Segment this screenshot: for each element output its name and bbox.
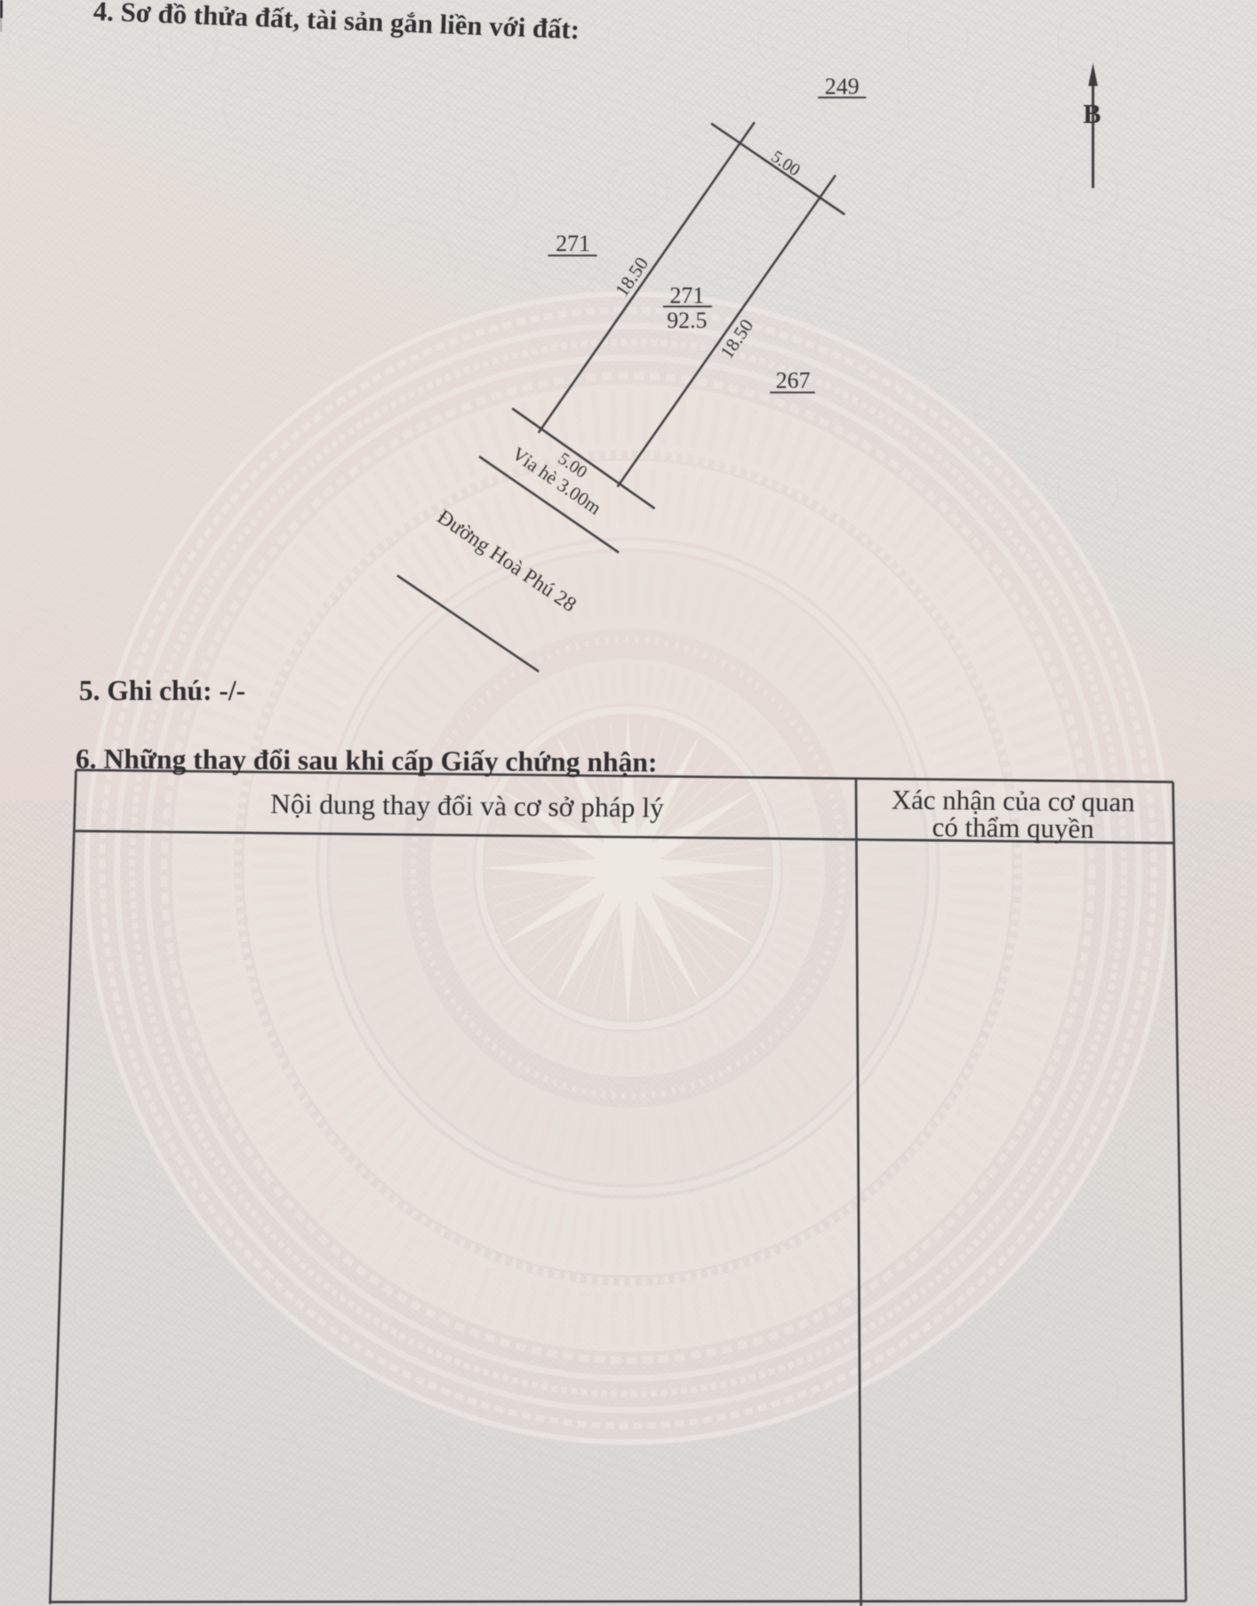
svg-text:Nội dung thay đổi và cơ sở phá: Nội dung thay đổi và cơ sở pháp lý <box>270 789 664 824</box>
svg-text:5. Ghi chú: -/-: 5. Ghi chú: -/- <box>79 676 245 707</box>
svg-text:B: B <box>1083 99 1101 129</box>
svg-text:92.5: 92.5 <box>667 308 707 333</box>
svg-text:267: 267 <box>776 368 811 393</box>
svg-text:6. Những thay đổi sau khi cấp: 6. Những thay đổi sau khi cấp Giấy chứng… <box>75 744 657 779</box>
svg-text:có thẩm quyền: có thẩm quyền <box>932 811 1094 844</box>
svg-text:271: 271 <box>556 231 591 256</box>
svg-text:249: 249 <box>825 74 860 99</box>
svg-text:271: 271 <box>670 283 705 308</box>
